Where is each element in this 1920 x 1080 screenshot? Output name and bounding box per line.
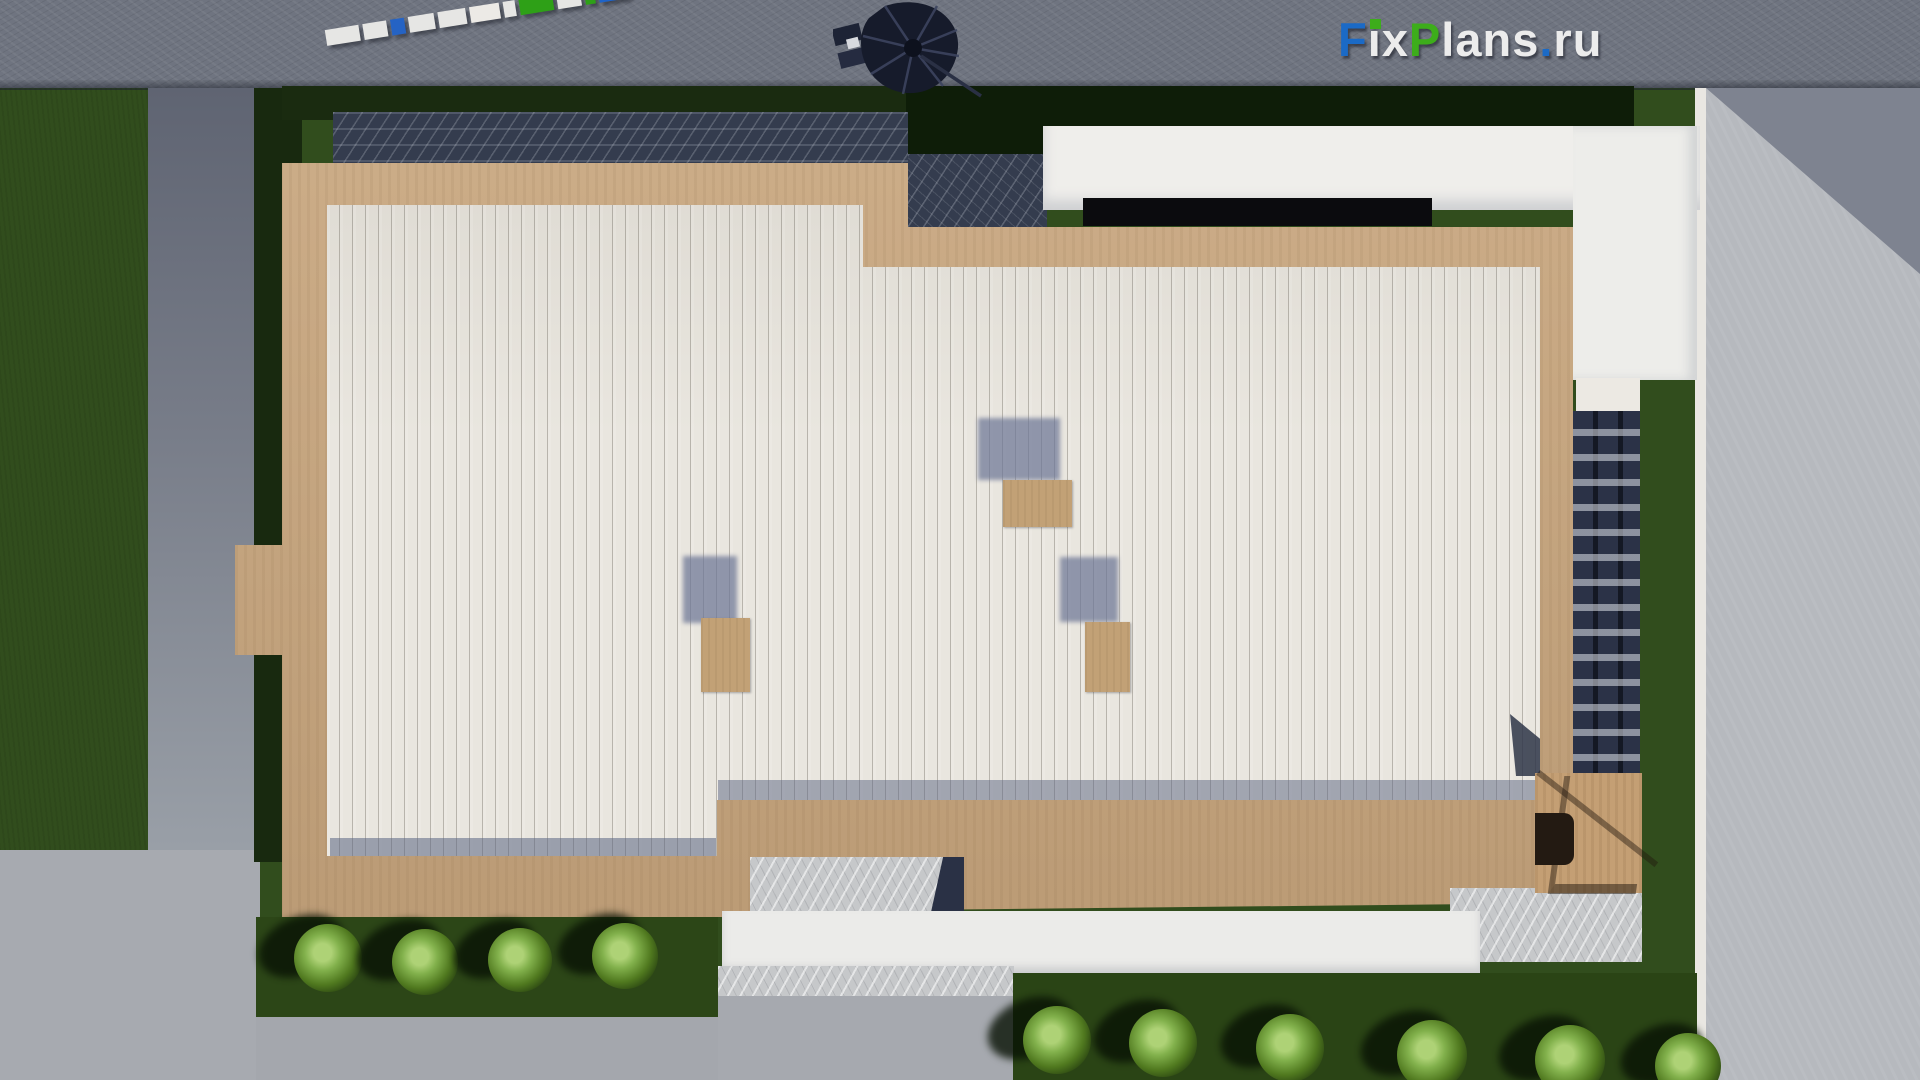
bush <box>1256 1014 1324 1080</box>
stair-wall <box>1573 411 1640 791</box>
chimney <box>1085 622 1130 692</box>
entrance-paving <box>908 154 1047 230</box>
logo-letter: u <box>1573 14 1603 66</box>
logo-letter: F <box>1338 14 1368 66</box>
logo-letter: r <box>1553 14 1572 66</box>
roof-edge-shadow-left <box>330 838 716 856</box>
chimney <box>1003 480 1072 527</box>
bottom-left-concrete <box>0 850 260 1080</box>
back-terrace-paving <box>333 112 908 166</box>
chimney-shadow <box>683 556 737 623</box>
roof-edge-shadow-right <box>718 780 1538 800</box>
clerestory-window <box>1083 198 1432 226</box>
bush <box>1023 1006 1091 1074</box>
bottom-center-path-stone <box>718 966 1014 996</box>
logo-i-dot <box>1370 19 1381 29</box>
chimney-shadow <box>978 418 1060 480</box>
logo-letter: n <box>1482 14 1512 66</box>
logo-letter: a <box>1455 14 1482 66</box>
scalebar-segment <box>390 18 406 36</box>
logo-letter: s <box>1512 14 1539 66</box>
terrace-doorway <box>1535 813 1574 865</box>
logo-letter: P <box>1409 14 1441 66</box>
logo-letter: l <box>1441 14 1455 66</box>
logo-letter: i <box>1368 14 1382 66</box>
bush <box>294 924 362 992</box>
fixplans-watermark: FixPlans.ru <box>1338 14 1602 66</box>
bush <box>592 923 658 989</box>
site-plan-render: FixPlans.ru <box>0 0 1920 1080</box>
white-parapet-right <box>1573 126 1697 380</box>
bush <box>1129 1009 1197 1077</box>
chimney <box>701 618 750 692</box>
scalebar-segment <box>503 0 517 18</box>
bush <box>392 929 458 995</box>
logo-letter: . <box>1539 14 1553 66</box>
bush <box>488 928 552 992</box>
stair-wall-cap <box>1576 378 1640 413</box>
left-path <box>148 88 260 860</box>
satellite-dish-icon <box>833 0 983 108</box>
chimney-shadow <box>1060 557 1118 622</box>
white-walkway <box>722 911 1480 973</box>
logo-letter: x <box>1382 14 1409 66</box>
left-lawn <box>0 88 150 860</box>
plank-roof <box>327 205 1540 856</box>
